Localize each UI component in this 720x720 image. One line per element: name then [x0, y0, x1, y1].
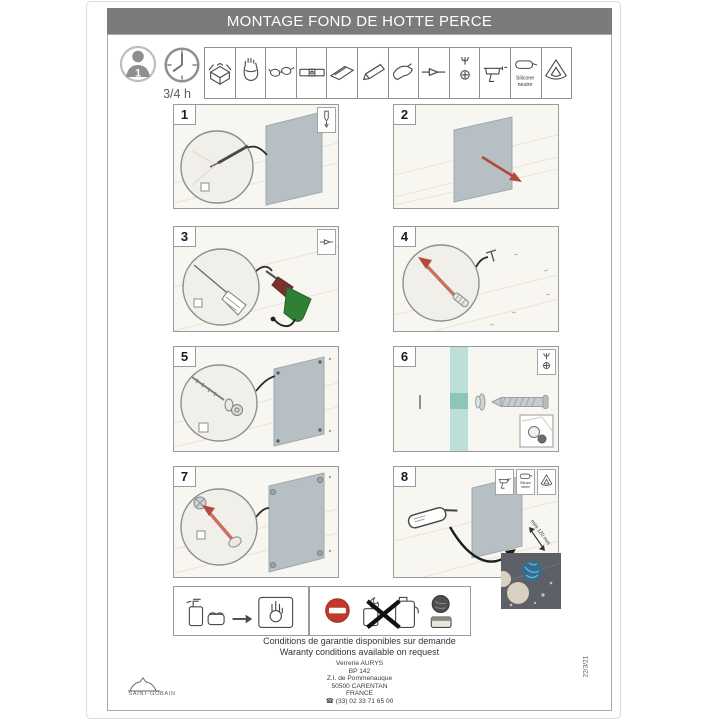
header-meta: 1: [118, 44, 203, 86]
step-7-scene: [174, 467, 338, 577]
step-5-scene: [174, 347, 338, 451]
zoom-inset: [181, 365, 257, 441]
page-title: MONTAGE FOND DE HOTTE PERCE: [107, 8, 612, 34]
spray-bottle-icon: [187, 599, 203, 625]
duration-label: 3/4 h: [154, 87, 200, 101]
mark-symbol: [197, 531, 205, 539]
brand-name: SAINT-GOBAIN: [122, 691, 182, 697]
screw-and-bit-icon: [449, 47, 481, 99]
spacer-block: [450, 393, 468, 409]
toolbox-icon: [204, 47, 236, 99]
content-area: 1 3/4 h: [107, 34, 612, 711]
mark-symbol: [199, 423, 208, 432]
address-line: 50500 CARENTAN: [108, 683, 611, 691]
warranty-line-fr: Conditions de garantie disponibles sur d…: [108, 636, 611, 646]
step-1-scene: [174, 105, 338, 208]
anchor-on-wall: [486, 250, 496, 262]
silicone-label-1: Silicone: [516, 76, 534, 82]
brand-logo: SAINT-GOBAIN: [122, 677, 182, 697]
forbidden-icons: [312, 588, 468, 634]
step-panel-6: 6: [393, 346, 559, 452]
glass-pane: [269, 473, 324, 572]
address-line: Verrerie AURYS: [108, 660, 611, 668]
step-number: 5: [174, 347, 196, 367]
person-count: 1: [135, 68, 141, 80]
flammable-products-crossed-icon: [364, 597, 419, 627]
arrow-right-icon: [233, 615, 252, 623]
caulking-gun-icon: [479, 47, 511, 99]
no-entry-icon: [326, 599, 349, 622]
smoothing-triangle-icon: [541, 47, 573, 99]
instruction-sheet: MONTAGE FOND DE HOTTE PERCE 1 3/4 h: [0, 0, 720, 720]
mark-symbol: [201, 183, 209, 191]
screwdriver-bit-icon: [537, 349, 556, 375]
step-panel-2: 2: [393, 104, 559, 209]
washer: [476, 394, 485, 410]
drill-bit-icon: [317, 229, 336, 255]
drill-bit-icon: [418, 47, 450, 99]
address-block: Verrerie AURYS BP 142 Z.I. de Pommenauqu…: [108, 660, 611, 706]
pencil-mark-icon: [317, 107, 336, 133]
step-panel-4: 4: [393, 226, 559, 332]
leader-line: [476, 257, 488, 267]
warranty-line-en: Waranty conditions available on request: [108, 647, 611, 657]
silicone-label-2: neutre: [517, 82, 532, 88]
zoom-inset: [181, 131, 253, 203]
forbidden-products-box: [309, 586, 471, 636]
step-number: 1: [174, 105, 196, 125]
step-number: 4: [394, 227, 416, 247]
step-number: 6: [394, 347, 416, 367]
step-number: 2: [394, 105, 416, 125]
scouring-pad-icon: [432, 596, 449, 613]
hood-holes-photo-inset: [501, 553, 561, 609]
address-line: Z.I. de Pommenauque: [108, 675, 611, 683]
phone-line: ☎ (33) 02 33 71 65 00: [108, 698, 611, 706]
glass-pane: [274, 357, 324, 446]
cleaning-icons: [176, 588, 306, 634]
smoothing-triangle-icon: [537, 469, 556, 495]
wipe-hand-cloth-icon: [259, 597, 293, 627]
zoom-inset: [181, 489, 257, 565]
cap-inset: [520, 415, 553, 447]
step-panel-5: 5: [173, 346, 339, 452]
glass-pane: [266, 112, 322, 205]
address-line: BP 142: [108, 668, 611, 676]
svg-text:neutre: neutre: [521, 485, 530, 489]
tools-row: Silicone neutre: [205, 47, 572, 99]
caulking-gun-icon: [495, 469, 514, 495]
glass-pane: [454, 117, 512, 202]
document-reference: 22/3/21: [583, 656, 590, 678]
step-number: 7: [174, 467, 196, 487]
clock-icon: [161, 44, 203, 86]
cleaning-instructions-box: [173, 586, 309, 636]
silicone-tube: [407, 503, 459, 529]
step-4-scene: [394, 227, 558, 331]
person-count-icon: 1: [118, 44, 158, 86]
silicone-tube-icon: Silicone neutre: [516, 469, 535, 495]
step-panel-3: 3: [173, 226, 339, 332]
step-6-scene: [394, 347, 558, 451]
drill: [266, 271, 311, 326]
leader-line: [256, 508, 269, 517]
pencil-icon: [357, 47, 389, 99]
hole-circle: [507, 582, 529, 604]
sponge-icon: [208, 613, 224, 625]
silicone-tube-icon: Silicone neutre: [510, 47, 542, 99]
leader-line: [256, 376, 275, 391]
step-2-scene: [394, 105, 558, 208]
step-number: 8: [394, 467, 416, 487]
step-number: 3: [174, 227, 196, 247]
step-3-scene: [174, 227, 338, 331]
phone-number: (33) 02 33 71 65 00: [336, 698, 394, 705]
power-drill-icon: [388, 47, 420, 99]
step-panel-7: 7: [173, 466, 339, 578]
spirit-level-icon: [296, 47, 328, 99]
work-gloves-icon: [235, 47, 267, 99]
step-panel-1: 1: [173, 104, 339, 209]
address-line: FRANCE: [108, 690, 611, 698]
safety-glasses-icon: [265, 47, 297, 99]
mark-symbol: [194, 299, 202, 307]
screw: [492, 396, 548, 409]
abrasive-sponge-icon: [431, 617, 451, 627]
photo-inset-graphic: [501, 553, 561, 609]
phone-icon: ☎: [326, 698, 334, 705]
try-square-icon: [326, 47, 358, 99]
